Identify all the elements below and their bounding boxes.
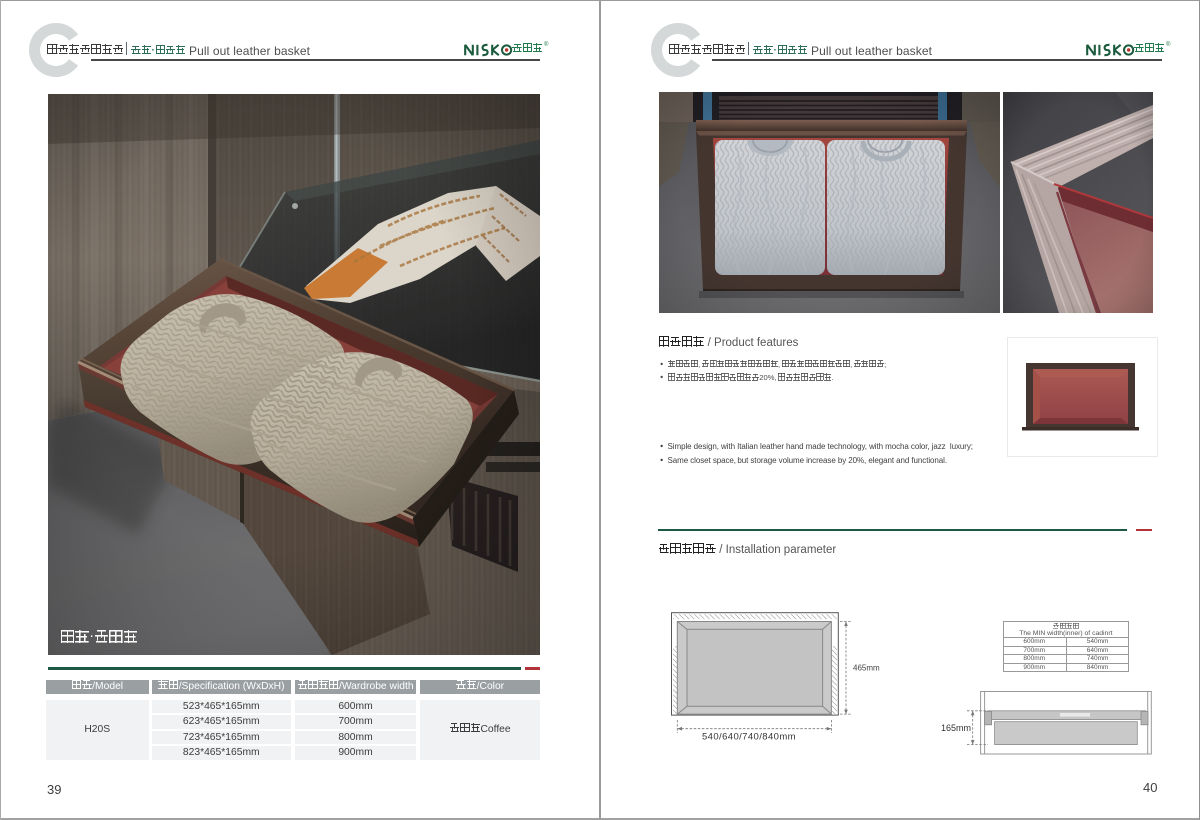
svg-text:465mm: 465mm bbox=[853, 664, 880, 673]
svg-text:540/640/740/840mm: 540/640/740/840mm bbox=[702, 732, 796, 743]
svg-text:165mm: 165mm bbox=[941, 723, 971, 733]
